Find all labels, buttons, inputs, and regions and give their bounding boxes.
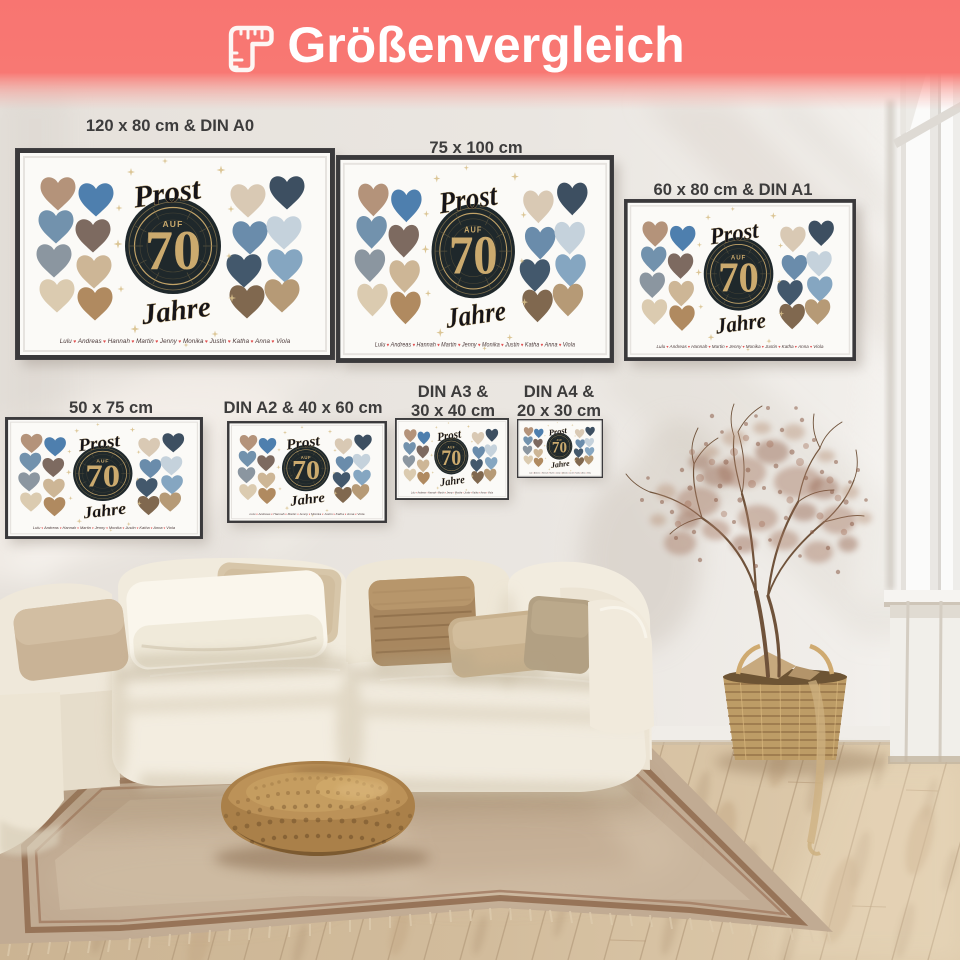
- svg-text:60 x 80 cm & DIN A1: 60 x 80 cm & DIN A1: [654, 180, 813, 199]
- svg-text:DIN A2 & 40 x 60 cm: DIN A2 & 40 x 60 cm: [224, 398, 383, 417]
- svg-text:Größenvergleich: Größenvergleich: [287, 17, 684, 73]
- svg-text:50 x 75 cm: 50 x 75 cm: [69, 398, 153, 417]
- svg-text:120 x 80 cm & DIN A0: 120 x 80 cm & DIN A0: [86, 116, 254, 135]
- svg-text:20 x 30 cm: 20 x 30 cm: [517, 401, 601, 420]
- svg-text:DIN A3 &: DIN A3 &: [418, 382, 488, 401]
- svg-text:DIN A4 &: DIN A4 &: [524, 382, 594, 401]
- svg-text:75 x 100 cm: 75 x 100 cm: [429, 138, 522, 157]
- svg-text:30 x 40 cm: 30 x 40 cm: [411, 401, 495, 420]
